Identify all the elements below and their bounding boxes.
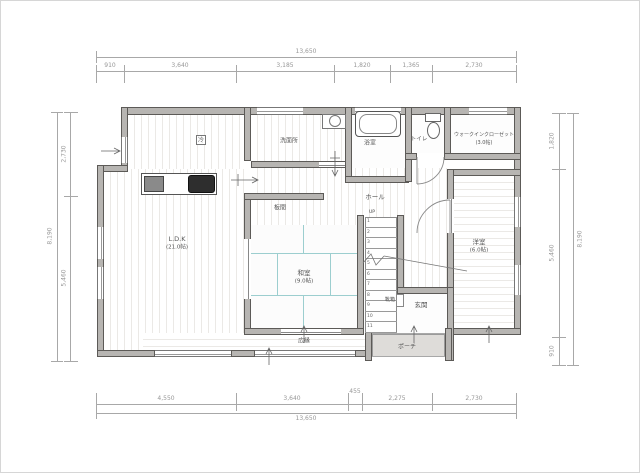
staircase: 1 2 3 4 5 6 7 8 9 10 11 xyxy=(365,217,397,333)
dim-top-seg-4: 1,365 xyxy=(402,62,419,69)
label-hall: ホール xyxy=(365,193,385,201)
dim-right-seg-1: 5,460 xyxy=(549,244,556,261)
stair-step: 3 xyxy=(365,238,397,249)
bathtub-inner xyxy=(359,114,397,134)
dim-top-total-line xyxy=(96,57,516,58)
tatami-line xyxy=(303,225,304,253)
dim-tick xyxy=(96,65,97,83)
wall-itanoma-top xyxy=(244,193,324,200)
label-itanoma: 板間 xyxy=(274,204,286,212)
label-bathroom: 浴室 xyxy=(364,139,376,147)
tatami-line xyxy=(303,295,304,328)
dim-tick xyxy=(567,365,579,366)
dim-tick xyxy=(362,393,363,411)
stair-number: 2 xyxy=(365,228,397,238)
dim-tick xyxy=(516,51,517,63)
stair-step: 11 xyxy=(365,322,397,333)
wall-bath-right xyxy=(405,107,412,182)
kitchen-sink xyxy=(144,176,164,192)
dim-bottom-total-line xyxy=(96,413,516,414)
label-ldk-name: L.D.K xyxy=(168,235,185,243)
ldk-floor xyxy=(104,169,245,350)
window-top-washroom xyxy=(257,107,303,115)
dim-tick xyxy=(236,393,237,411)
wall-kitchen-washroom xyxy=(244,107,251,161)
toilet-tank xyxy=(425,113,441,122)
dim-tick xyxy=(567,113,579,114)
window-youshitsu-right-1 xyxy=(514,197,521,227)
wall-genkan-top xyxy=(397,287,454,294)
label-hiroen: 広縁 xyxy=(298,337,310,345)
dim-top-seg-5: 2,730 xyxy=(465,62,482,69)
dim-top-seg-2: 3,185 xyxy=(276,62,293,69)
stair-number: 6 xyxy=(365,270,397,280)
dim-tick xyxy=(96,407,97,419)
window-kitchen-left xyxy=(121,137,128,163)
stair-number: 4 xyxy=(365,249,397,259)
door-washroom xyxy=(319,162,347,167)
refrigerator-marker: 冷 xyxy=(196,135,206,145)
kitchen-stove xyxy=(188,175,215,193)
dim-top-total: 13,650 xyxy=(296,48,317,55)
dim-right-total-line xyxy=(573,113,574,365)
dim-right-seg-2: 910 xyxy=(549,345,556,356)
door-washitsu-hiroen xyxy=(281,329,341,334)
dim-tick xyxy=(390,65,391,83)
dim-tick xyxy=(51,361,63,362)
genkan-step-line xyxy=(372,333,445,334)
dim-tick xyxy=(516,407,517,419)
dim-right-seg-0: 1,820 xyxy=(549,132,556,149)
stair-step: 4 xyxy=(365,249,397,260)
dim-tick xyxy=(64,196,78,197)
dim-tick xyxy=(124,65,125,83)
washer-drum xyxy=(329,115,341,127)
label-washroom: 洗面所 xyxy=(280,137,298,145)
dim-left-total: 8,190 xyxy=(47,227,54,244)
label-genkan: 玄関 xyxy=(415,301,428,309)
window-ldk-left-1 xyxy=(97,227,104,259)
dim-bottom-seg-0: 4,550 xyxy=(157,395,174,402)
wall-youshitsu-top xyxy=(447,169,521,176)
dim-top-seg-0: 910 xyxy=(104,62,115,69)
stair-step: 6 xyxy=(365,270,397,281)
stair-number: 7 xyxy=(365,280,397,290)
dim-bottom-seg-1: 3,640 xyxy=(283,395,300,402)
stair-step: 7 xyxy=(365,280,397,291)
dim-tick xyxy=(236,65,237,83)
wall-ldk-left xyxy=(97,165,104,357)
stair-number: 5 xyxy=(365,259,397,269)
dim-right-seg-line xyxy=(559,113,560,365)
dim-tick xyxy=(552,113,566,114)
hiroen-floor xyxy=(143,333,365,350)
dim-bottom-seg-4: 2,730 xyxy=(465,395,482,402)
wall-bottom-2 xyxy=(231,350,255,357)
dim-tick xyxy=(348,393,349,411)
dim-tick xyxy=(334,65,335,83)
stair-step: 2 xyxy=(365,228,397,239)
label-youshitsu-size: (6.0帖) xyxy=(470,248,489,255)
stair-number: 1 xyxy=(365,217,397,227)
label-toilet: トイレ xyxy=(411,137,428,144)
kitchen-floor xyxy=(128,115,245,173)
dim-tick xyxy=(552,365,566,366)
porch-edge-line xyxy=(372,356,445,357)
kitchen-window-arrow xyxy=(101,148,120,154)
stair-step: 5 xyxy=(365,259,397,270)
label-shoe-cabinet: 靴箱 xyxy=(385,297,395,303)
dim-left-total-line xyxy=(57,112,58,361)
wall-washitsu-right xyxy=(357,215,364,335)
stair-number: 10 xyxy=(365,312,397,322)
label-washitsu-size: (9.0帖) xyxy=(295,279,314,286)
dim-bottom-seg-2: 455 xyxy=(349,388,360,395)
dim-left-seg-0: 2,730 xyxy=(61,145,68,162)
label-porch: ポーチ xyxy=(398,343,416,351)
wall-youshitsu-bottom xyxy=(447,328,521,335)
stair-step: 10 xyxy=(365,312,397,323)
window-youshitsu-right-2 xyxy=(514,265,521,295)
door-youshitsu-gap xyxy=(447,199,454,233)
itanoma-floor xyxy=(251,197,357,225)
stair-number: 11 xyxy=(365,322,397,332)
floor-plan-canvas: 冷 1 2 3 4 5 6 7 8 9 10 11 UP xyxy=(0,0,640,473)
dim-bottom-total: 13,650 xyxy=(296,415,317,422)
dim-tick xyxy=(64,112,78,113)
wall-toilet-bottom-stub xyxy=(405,153,417,160)
dim-right-total: 8,190 xyxy=(577,230,584,247)
dim-tick xyxy=(96,51,97,63)
wall-wic-bottom xyxy=(444,153,521,160)
toilet-bowl xyxy=(427,122,440,139)
stair-number: 3 xyxy=(365,238,397,248)
label-wic-size: (3.0帖) xyxy=(476,140,493,146)
label-ldk-size: (21.0帖) xyxy=(166,245,188,252)
dim-top-seg-line xyxy=(96,71,516,72)
label-youshitsu-name: 洋室 xyxy=(473,238,486,246)
wall-porch-right xyxy=(445,328,452,361)
dim-tick xyxy=(516,65,517,83)
dim-bottom-seg-line xyxy=(96,404,516,405)
wall-stairs-right xyxy=(397,215,404,293)
dim-left-seg-1: 5,460 xyxy=(61,269,68,286)
dim-tick xyxy=(552,337,566,338)
dim-bottom-seg-3: 2,275 xyxy=(388,395,405,402)
window-bottom-ldk xyxy=(155,350,231,357)
dim-tick xyxy=(64,361,78,362)
window-top-wic xyxy=(469,107,507,115)
dim-left-seg-line xyxy=(70,112,71,361)
dim-tick xyxy=(552,169,566,170)
window-ldk-left-2 xyxy=(97,267,104,299)
wall-bath-left xyxy=(345,107,352,182)
stairs-up-label: UP xyxy=(369,210,375,216)
wall-top xyxy=(121,107,521,115)
dim-tick xyxy=(432,65,433,83)
dim-tick xyxy=(432,393,433,411)
dim-top-seg-1: 3,640 xyxy=(171,62,188,69)
window-bottom-hiroen xyxy=(255,350,355,357)
door-washitsu-ldk xyxy=(244,239,251,299)
label-wic-name: ウォークインクローゼット xyxy=(454,132,514,138)
stair-step: 1 xyxy=(365,217,397,228)
dim-tick xyxy=(51,112,63,113)
wall-bottom-1 xyxy=(97,350,155,357)
wall-bath-bottom xyxy=(345,176,409,183)
label-washitsu-name: 和室 xyxy=(298,269,311,277)
dim-top-seg-3: 1,820 xyxy=(353,62,370,69)
